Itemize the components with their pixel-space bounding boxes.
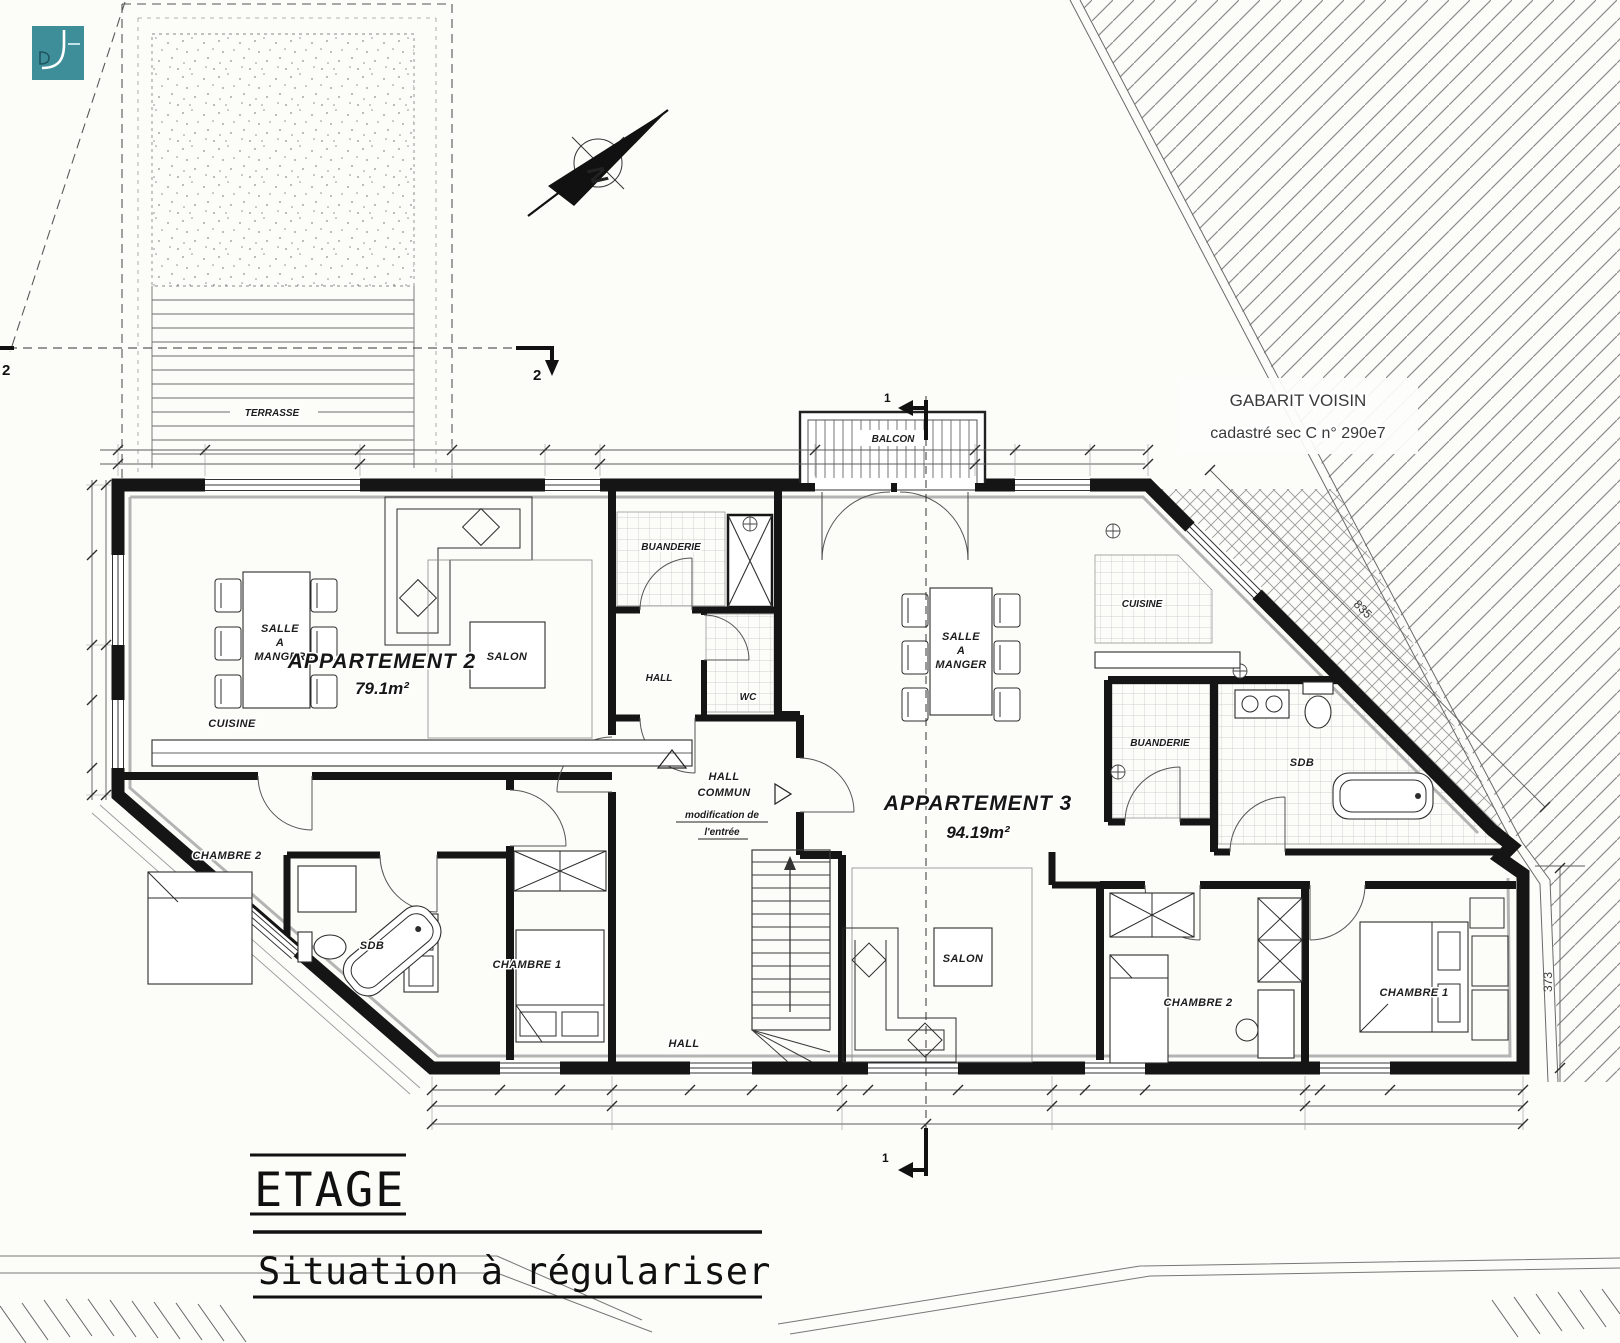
neighbor-cadastre-ref: cadastré sec C n° 290e7	[1210, 425, 1385, 442]
terrace-decking	[152, 286, 414, 468]
apt3-living-label: SALON	[943, 953, 984, 965]
agency-logo	[32, 26, 84, 80]
section-line-2: 2 2	[0, 346, 559, 384]
apt3-laundry-label: BUANDERIE	[1130, 738, 1190, 749]
apt3-dining-label-3: MANGER	[935, 659, 986, 671]
common-wc-label: WC	[740, 692, 757, 703]
entry-note-line-2: l'entrée	[704, 827, 740, 838]
section-2-label-right: 2	[533, 367, 541, 384]
apt2-dining-label-2: A	[275, 637, 284, 649]
section-2-label-left: 2	[2, 362, 10, 379]
apt2-kitchen-label: CUISINE	[208, 718, 256, 730]
apt3-bedroom1-label: CHAMBRE 1	[1380, 987, 1449, 999]
road-edge-hatching	[0, 1289, 1620, 1343]
floor-plan-page: GABARIT VOISIN cadastré sec C n° 290e7 T…	[0, 0, 1620, 1343]
apt3-title: APPARTEMENT 3	[883, 792, 1072, 815]
apt2-title: APPARTEMENT 2	[287, 650, 476, 673]
section-line-1: 1 1	[882, 391, 928, 1178]
vent-icon	[1106, 524, 1120, 538]
balcony-door	[815, 477, 975, 560]
apt2-area: 79.1m²	[355, 679, 410, 698]
balcony-label: BALCON	[872, 434, 916, 445]
neighbor-label-panel	[1178, 378, 1418, 454]
dim-right-side: 373	[1541, 972, 1555, 992]
apt3-kitchen-label: CUISINE	[1122, 599, 1163, 610]
staircase	[752, 850, 830, 1062]
terrace: TERRASSE	[122, 4, 452, 482]
apt3-dining-label-1: SALLE	[942, 631, 980, 643]
floor-plan-drawing: GABARIT VOISIN cadastré sec C n° 290e7 T…	[0, 0, 1620, 1343]
terrace-label: TERRASSE	[245, 408, 300, 419]
terrace-gravel-area	[152, 34, 414, 286]
apt2-living-label: SALON	[487, 651, 528, 663]
technical-shaft	[728, 515, 772, 607]
vent-icon	[1111, 765, 1125, 779]
balcony: BALCON	[800, 412, 985, 483]
entry-note-line-1: modification de	[685, 810, 759, 821]
apt2-bedroom2-label: CHAMBRE 2	[193, 850, 262, 862]
common-hall-top-label: HALL	[646, 673, 673, 684]
north-arrow: N	[528, 110, 668, 216]
apt3-bedroom2-label: CHAMBRE 2	[1164, 997, 1233, 1009]
section-1-label-top: 1	[884, 391, 891, 405]
apt2-bedroom1-label: CHAMBRE 1	[493, 959, 562, 971]
apt2-dining-label-1: SALLE	[261, 623, 299, 635]
common-hall-bottom-label: HALL	[669, 1038, 700, 1050]
neighbor-title: GABARIT VOISIN	[1230, 391, 1367, 410]
drawing-titles: ETAGE Situation à régulariser	[250, 1155, 770, 1297]
status-title: Situation à régulariser	[258, 1250, 770, 1293]
common-hall-main-label-1: HALL	[709, 771, 740, 783]
apt3-dining-label-2: A	[956, 645, 965, 657]
common-laundry-label: BUANDERIE	[641, 542, 701, 553]
apt2-bath-label: SDB	[360, 940, 384, 952]
apt3-area: 94.19m²	[946, 823, 1011, 842]
floor-title: ETAGE	[254, 1163, 405, 1218]
apt3-bath-label: SDB	[1290, 757, 1314, 769]
section-1-label-bottom: 1	[882, 1151, 889, 1165]
common-hall-main-label-2: COMMUN	[697, 787, 751, 799]
